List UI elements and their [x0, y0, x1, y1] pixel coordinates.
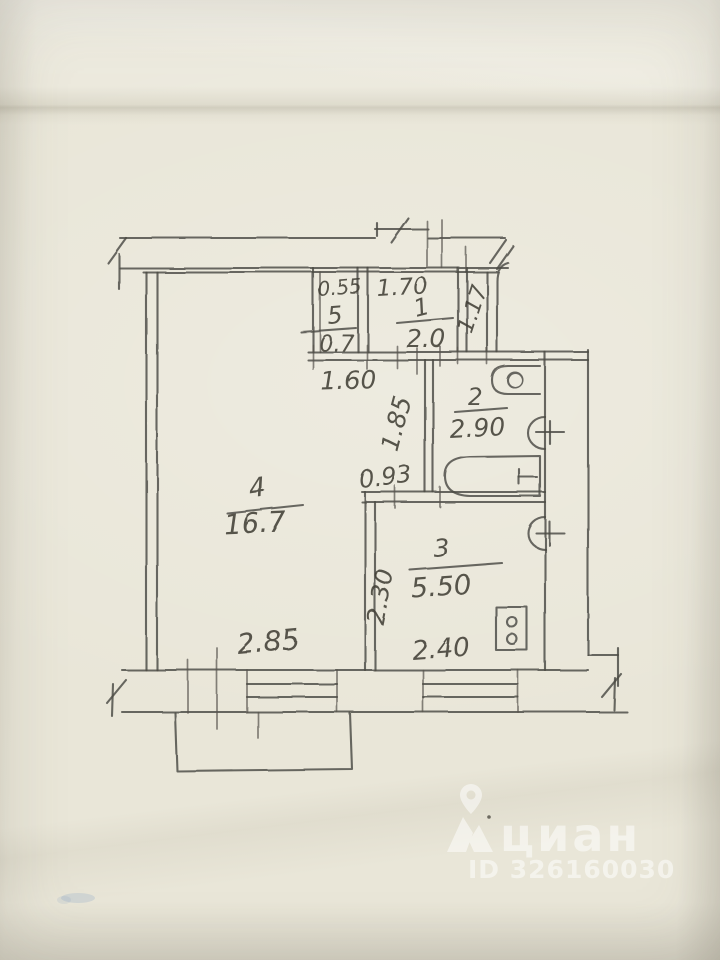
wall-left	[146, 272, 157, 670]
watermark: циан ID 326160030	[447, 784, 675, 884]
map-pin-icon	[460, 784, 482, 814]
watermark-id: ID 326160030	[468, 855, 675, 884]
closet-area: 0.7	[319, 332, 354, 357]
dimension-labels: 0.55 1.70 1.17 1.60 1.85 0.93 2.30 2.40 …	[236, 273, 493, 666]
dim-closet-width: 0.55	[317, 274, 363, 301]
floor-plan-sketch: 5 0.7 1 2.0 2 2.90 4 16.7 3 5.50 0.55 1.…	[0, 0, 720, 960]
room-label-living: 4 16.7	[223, 472, 303, 541]
room-label-bathroom: 2 2.90	[449, 385, 507, 444]
living-number: 4	[247, 472, 268, 505]
ink-smudge	[57, 893, 95, 904]
dim-hall-width: 1.70	[376, 273, 429, 302]
dim-living-bottom: 2.85	[236, 623, 301, 661]
balcony	[175, 713, 352, 771]
dim-passage: 0.93	[358, 461, 414, 494]
wall-right	[545, 350, 618, 686]
ink-speck	[487, 815, 491, 819]
living-area: 16.7	[223, 505, 287, 541]
bathtub-icon	[445, 456, 540, 496]
window-kitchen	[423, 670, 518, 712]
dim-hall-bottom: 1.60	[320, 365, 377, 396]
wall-top-outer	[120, 218, 508, 268]
cian-logo-mark	[447, 817, 493, 852]
floor-plan-photo: 5 0.7 1 2.0 2 2.90 4 16.7 3 5.50 0.55 1.…	[0, 0, 720, 960]
break-mark-bottom-left	[107, 680, 126, 716]
kitchen-area: 5.50	[410, 570, 472, 605]
stove-icon	[496, 607, 527, 650]
bathroom-left-wall	[425, 360, 433, 492]
watermark-brand: циан	[500, 808, 641, 862]
bathroom-number: 2	[468, 385, 483, 411]
kitchen-number: 3	[432, 533, 450, 563]
window-living	[247, 670, 337, 712]
dim-corridor: 1.85	[375, 393, 417, 454]
toilet-icon	[492, 366, 540, 394]
room-label-hall: 1 2.0	[397, 292, 453, 353]
dim-kitchen-side: 2.30	[361, 567, 400, 627]
break-marks-top	[108, 220, 513, 289]
room-label-kitchen: 3 5.50	[410, 533, 502, 605]
closet-number: 5	[326, 301, 344, 330]
room-label-closet: 5 0.7	[301, 301, 356, 357]
bathroom-area: 2.90	[449, 412, 506, 444]
hall-area: 2.0	[406, 324, 446, 353]
dim-kitchen-bottom: 2.40	[410, 632, 470, 666]
